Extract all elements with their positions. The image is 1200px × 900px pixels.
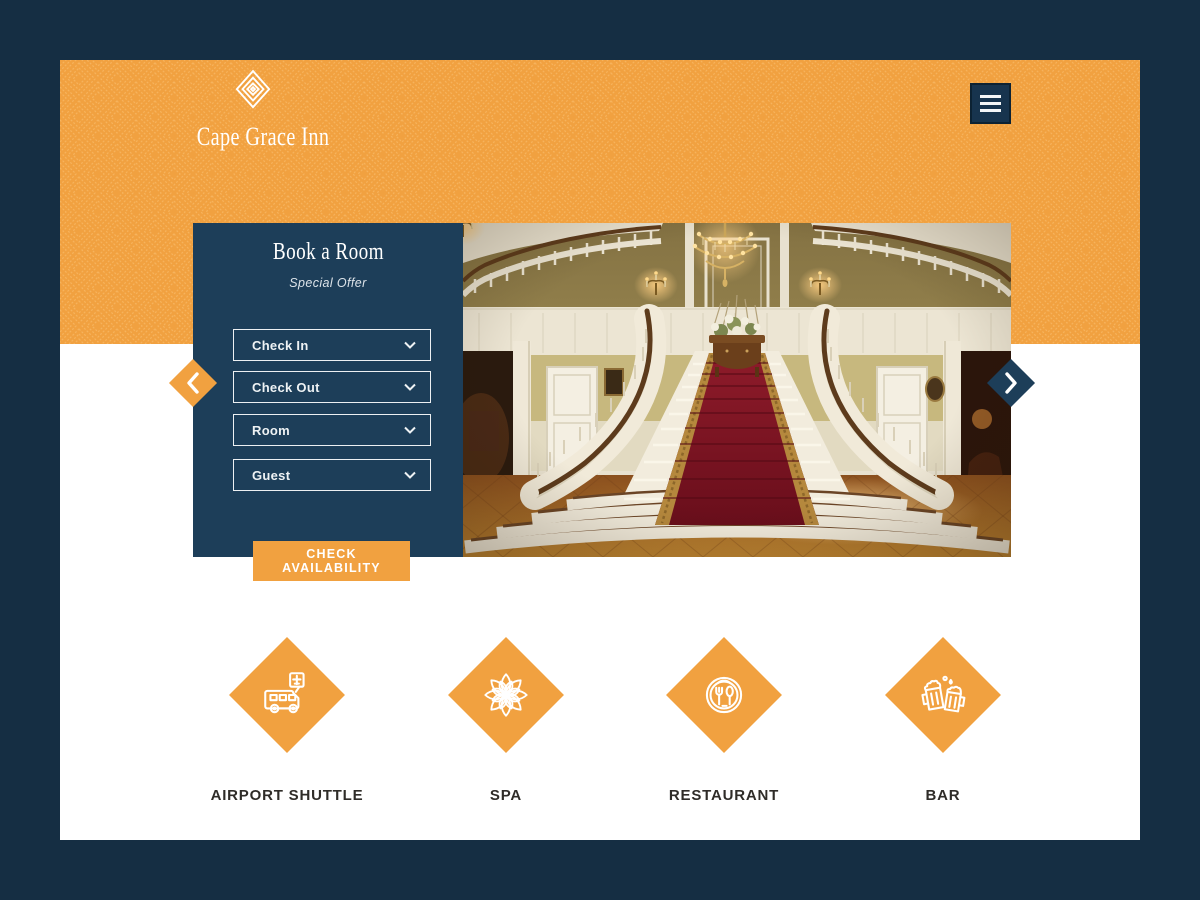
service-tile-restaurant[interactable] [666,637,782,753]
check-availability-button[interactable]: CHECK AVAILABILITY [253,541,410,581]
chevron-right-icon [1004,372,1018,394]
check-out-select[interactable]: Check Out [233,371,431,403]
hero-carousel: Book a Room Special Offer Check In Check… [193,223,1011,557]
site-card: Cape Grace Inn Book a Room Special Offer… [60,60,1140,840]
service-bar: BAR [853,635,1033,835]
booking-title: Book a Room [193,239,463,266]
brand-name: Cape Grace Inn [197,122,330,152]
carousel-next-button[interactable] [987,359,1035,407]
service-restaurant: RESTAURANT [634,635,814,835]
booking-subtitle: Special Offer [193,276,463,290]
chevron-down-icon [404,341,416,349]
service-label: BAR [853,787,1033,804]
chevron-down-icon [404,383,416,391]
hero-photo [463,223,1011,557]
chevron-down-icon [404,471,416,479]
service-tile-bar[interactable] [885,637,1001,753]
service-airport-shuttle: AIRPORT SHUTTLE [197,635,377,835]
chevron-down-icon [404,426,416,434]
chevron-left-icon [186,372,200,394]
check-in-select[interactable]: Check In [233,329,431,361]
brand-diamond-icon [234,68,272,114]
booking-panel: Book a Room Special Offer Check In Check… [193,223,463,557]
brand-logo[interactable]: Cape Grace Inn [178,68,328,152]
service-spa: SPA [416,635,596,835]
guest-select[interactable]: Guest [233,459,431,491]
service-tile-spa[interactable] [448,637,564,753]
carousel-prev-button[interactable] [169,359,217,407]
service-label: SPA [416,787,596,804]
service-label: RESTAURANT [634,787,814,804]
service-label: AIRPORT SHUTTLE [197,787,377,804]
room-select[interactable]: Room [233,414,431,446]
services-section: AIRPORT SHUTTLE [60,635,1140,840]
menu-button[interactable] [970,83,1011,124]
service-tile-airport-shuttle[interactable] [229,637,345,753]
